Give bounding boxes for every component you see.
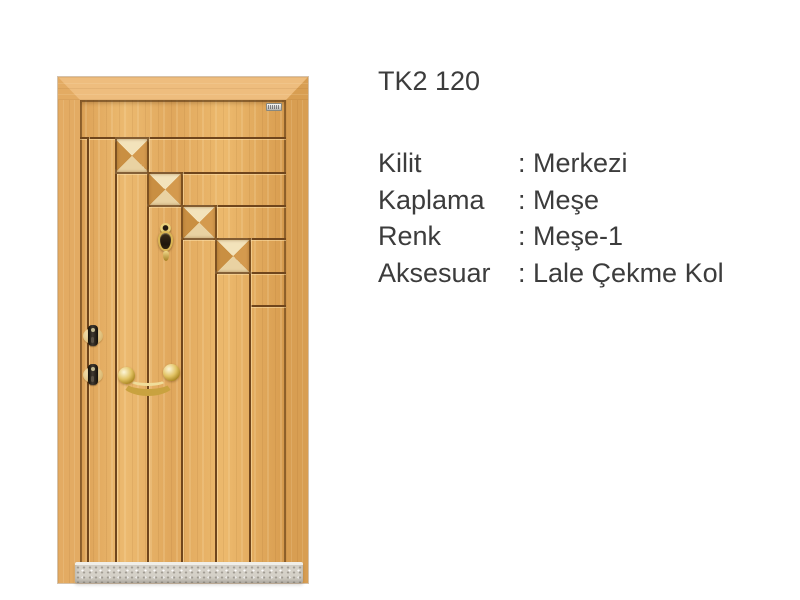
page: TK2 120 Kilit : Merkezi Kaplama : Meşe R… bbox=[0, 0, 800, 600]
spec-label: Kilit bbox=[378, 145, 518, 182]
lock-cylinder-upper bbox=[88, 325, 98, 346]
groove-line bbox=[249, 238, 251, 562]
door-product-photo bbox=[58, 77, 308, 583]
granite-threshold bbox=[75, 562, 303, 583]
spec-value: Meşe-1 bbox=[533, 218, 623, 255]
knocker-drop bbox=[163, 251, 169, 261]
door-frame-left-jamb bbox=[58, 100, 80, 583]
pyramid-panel bbox=[215, 238, 251, 274]
spec-separator: : bbox=[518, 182, 533, 219]
spec-label: Kaplama bbox=[378, 182, 518, 219]
groove-line bbox=[80, 137, 286, 139]
brand-badge bbox=[266, 103, 282, 111]
knocker-body bbox=[158, 231, 173, 251]
spec-label: Aksesuar bbox=[378, 255, 518, 292]
spec-row: Kilit : Merkezi bbox=[378, 145, 724, 182]
spec-list: Kilit : Merkezi Kaplama : Meşe Renk : Me… bbox=[378, 145, 724, 291]
spec-value: Meşe bbox=[533, 182, 599, 219]
spec-value: Lale Çekme Kol bbox=[533, 255, 724, 292]
spec-row: Kaplama : Meşe bbox=[378, 182, 724, 219]
spec-label: Renk bbox=[378, 218, 518, 255]
door-knocker bbox=[158, 223, 173, 261]
door-frame-head bbox=[58, 77, 308, 100]
door-frame-right-jamb bbox=[286, 100, 308, 583]
groove-line bbox=[115, 137, 117, 562]
spec-separator: : bbox=[518, 145, 533, 182]
groove-line bbox=[249, 305, 286, 307]
product-info: TK2 120 Kilit : Merkezi Kaplama : Meşe R… bbox=[378, 63, 724, 291]
pull-handle-rosette-right bbox=[163, 364, 180, 381]
door-leaf bbox=[80, 100, 286, 583]
pyramid-panel bbox=[181, 205, 217, 240]
spec-row: Renk : Meşe-1 bbox=[378, 218, 724, 255]
groove-line bbox=[87, 137, 89, 562]
pyramid-panel bbox=[147, 172, 183, 207]
spec-row: Aksesuar : Lale Çekme Kol bbox=[378, 255, 724, 292]
pull-handle-rosette-left bbox=[118, 367, 135, 384]
spec-separator: : bbox=[518, 255, 533, 292]
spec-separator: : bbox=[518, 218, 533, 255]
lock-cylinder-lower bbox=[88, 364, 98, 385]
pyramid-panel bbox=[115, 137, 149, 174]
spec-value: Merkezi bbox=[533, 145, 628, 182]
product-title: TK2 120 bbox=[378, 63, 724, 99]
